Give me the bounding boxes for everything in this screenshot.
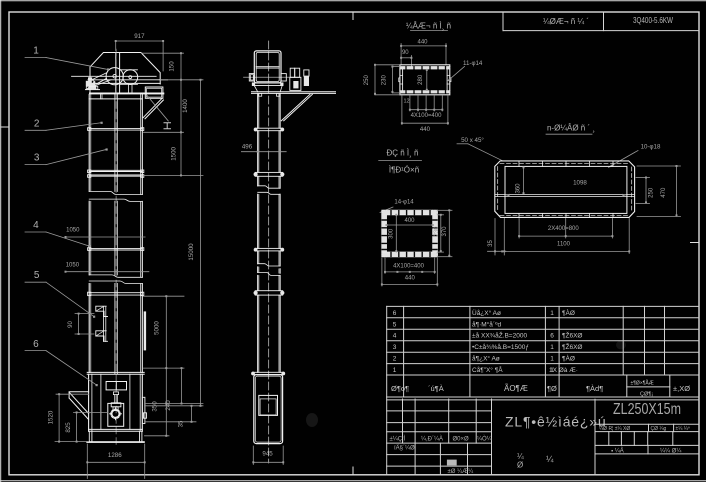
svg-text:3: 3 <box>393 344 397 351</box>
svg-text:35: 35 <box>488 240 494 247</box>
svg-text:ÇØ ¼g: ÇØ ¼g <box>651 426 667 432</box>
svg-text:90: 90 <box>68 321 74 328</box>
svg-text:1520: 1520 <box>47 410 54 424</box>
svg-text:90: 90 <box>402 50 409 56</box>
svg-text:1: 1 <box>33 46 39 57</box>
svg-text:¼ÅÆ¬ ñ Ì¸ ñ: ¼ÅÆ¬ ñ Ì¸ ñ <box>406 22 451 31</box>
svg-text:2X400=800: 2X400=800 <box>548 226 580 232</box>
svg-text:10-φ18: 10-φ18 <box>641 143 661 150</box>
svg-text:370: 370 <box>442 226 448 237</box>
svg-text:¼ØÆ¬ ñ ¼ ´: ¼ØÆ¬ ñ ¼ ´ <box>543 17 589 26</box>
svg-text:1: 1 <box>550 356 554 363</box>
svg-text:´ú¶À: ´ú¶À <box>428 384 444 393</box>
svg-text:470: 470 <box>661 187 667 198</box>
svg-text:230: 230 <box>382 75 388 86</box>
svg-text:14-φ14: 14-φ14 <box>394 200 414 206</box>
svg-text:440: 440 <box>405 276 416 282</box>
svg-text:Üå¿X° Aø: Üå¿X° Aø <box>472 309 501 317</box>
svg-text:¶Ž6XØ: ¶Ž6XØ <box>562 342 582 351</box>
svg-text:230: 230 <box>434 226 440 237</box>
svg-text:2: 2 <box>34 119 40 130</box>
svg-text:¼Ò¼: ¼Ò¼ <box>477 436 493 443</box>
svg-text:±¼ ¼º: ±¼ ¼º <box>676 426 690 432</box>
svg-text:4X100=400: 4X100=400 <box>411 113 443 119</box>
svg-text:917: 917 <box>134 33 145 40</box>
svg-text:280: 280 <box>418 74 424 85</box>
svg-text:15000: 15000 <box>188 243 195 261</box>
svg-text:50 x 45°: 50 x 45° <box>461 137 484 144</box>
svg-text:12: 12 <box>404 98 410 104</box>
svg-text:1100: 1100 <box>557 241 571 247</box>
svg-text:¼Ø R¦ ±¼ XØ: ¼Ø R¦ ±¼ XØ <box>599 426 630 432</box>
svg-text:250: 250 <box>364 75 370 86</box>
svg-text:350: 350 <box>151 401 158 412</box>
svg-text:440: 440 <box>417 39 428 45</box>
svg-text:1400: 1400 <box>182 99 189 113</box>
svg-text:5: 5 <box>393 321 397 328</box>
svg-text:n-Ø¼ÂØ ñ ´ ¸: n-Ø¼ÂØ ñ ´ ¸ <box>547 124 595 133</box>
svg-text:±å XX¾åŽ.B=2000: ±å XX¾åŽ.B=2000 <box>472 331 527 340</box>
svg-text:496: 496 <box>242 144 253 151</box>
svg-text:150: 150 <box>169 61 176 72</box>
svg-text:Cå¶”X° ¶Å: Cå¶”X° ¶Å <box>472 365 503 374</box>
svg-text:¶Ž6XØ: ¶Ž6XØ <box>562 331 582 340</box>
svg-text:825: 825 <box>65 422 72 433</box>
svg-text:±¼Ç¦Ì: ±¼Ç¦Ì <box>390 436 406 443</box>
svg-text:11-φ14: 11-φ14 <box>463 60 483 67</box>
svg-text:440: 440 <box>420 127 431 133</box>
svg-text:¼: ¼ <box>546 454 554 464</box>
svg-text:±¶Ø×¶ÃÆ: ±¶Ø×¶ÃÆ <box>631 380 654 387</box>
svg-text:ÐÇ ñ Ì¸ ñ: ÐÇ ñ Ì¸ ñ <box>386 149 418 158</box>
svg-text:250: 250 <box>649 187 655 198</box>
svg-text:5: 5 <box>34 270 40 281</box>
svg-text:1050: 1050 <box>66 262 80 268</box>
svg-text:▪ ¼Å: ▪ ¼Å <box>611 447 624 454</box>
svg-text:1: 1 <box>550 310 554 317</box>
svg-text:3Q400-5.6KW: 3Q400-5.6KW <box>633 16 674 25</box>
svg-text:360: 360 <box>516 183 522 194</box>
svg-text:ÇØ¶¡: ÇØ¶¡ <box>640 392 653 398</box>
svg-text:Ì¶Ð¹Ó×ñ: Ì¶Ð¹Ó×ñ <box>389 166 419 175</box>
svg-text:¼¼ Ø¼: ¼¼ Ø¼ <box>660 448 682 454</box>
svg-text:¶ÀØ: ¶ÀØ <box>562 308 575 317</box>
svg-text:6: 6 <box>393 310 397 317</box>
svg-text:35: 35 <box>179 420 185 427</box>
svg-text:4: 4 <box>33 220 39 231</box>
svg-text:300: 300 <box>389 228 395 239</box>
svg-text:ZL250X15m: ZL250X15m <box>613 401 681 418</box>
svg-text:240: 240 <box>165 400 172 411</box>
svg-text:1: 1 <box>550 344 554 351</box>
svg-text:ÃO¶Æ: ÃO¶Æ <box>504 384 528 393</box>
svg-text:1X Øà Æ·: 1X Øà Æ· <box>549 367 578 374</box>
svg-text:±Ø ¼Æ¼: ±Ø ¼Æ¼ <box>448 469 475 475</box>
svg-text:Ø0×Ø: Ø0×Ø <box>453 437 470 443</box>
svg-text:4: 4 <box>393 333 397 340</box>
svg-text:5000: 5000 <box>153 321 160 335</box>
svg-text:¼,Ð´¼À: ¼,Ð´¼À <box>421 436 443 443</box>
svg-text:íÄ§´¼Ø: íÄ§´¼Ø <box>394 445 415 452</box>
svg-text:6: 6 <box>33 339 39 350</box>
svg-text:±,XØ: ±,XØ <box>673 384 690 393</box>
svg-text:4X100=400: 4X100=400 <box>393 263 425 269</box>
svg-text:ZL¶•ê½ìáé¿»ú: ZL¶•ê½ìáé¿»ú <box>505 413 606 429</box>
svg-text:Ø¶o¶: Ø¶o¶ <box>391 384 409 393</box>
svg-text:1: 1 <box>393 367 397 374</box>
svg-text:Ø: Ø <box>517 461 523 470</box>
svg-text:1050: 1050 <box>66 227 80 233</box>
svg-text:¶Àd¶: ¶Àd¶ <box>586 384 603 393</box>
svg-text:1286: 1286 <box>108 452 122 459</box>
svg-text:3: 3 <box>34 153 40 164</box>
svg-text:1098: 1098 <box>573 180 587 187</box>
svg-text:å¶¿X° Aø: å¶¿X° Aø <box>472 355 500 363</box>
svg-text:6: 6 <box>550 333 554 340</box>
svg-text:2: 2 <box>393 356 397 363</box>
svg-text:945: 945 <box>262 451 273 458</box>
svg-text:1500: 1500 <box>171 146 178 160</box>
svg-text:•C±å¾%å.B=1500ƒ: •C±å¾%å.B=1500ƒ <box>472 343 529 351</box>
svg-text:¶Ø: ¶Ø <box>547 384 557 393</box>
svg-text:400: 400 <box>404 218 415 224</box>
svg-text:å¶·M°å´ºd: å¶·M°å´ºd <box>472 320 501 328</box>
svg-text:¶ÀØ: ¶ÀØ <box>562 354 575 363</box>
